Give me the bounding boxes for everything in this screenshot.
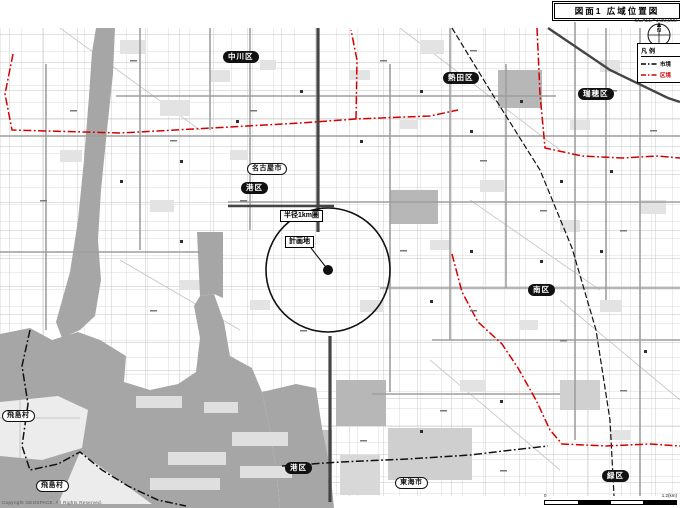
scale-bar-max-label: 1.2(km) xyxy=(662,494,677,499)
legend-item-ward-boundary: 区境 xyxy=(641,71,680,79)
legend: 凡例 市境 区境 xyxy=(637,43,680,83)
radius-ring-label: 半径1km圏 xyxy=(280,210,323,222)
copyright-text: Copyright GEOSPACE. All Rights Reserved. xyxy=(2,500,102,505)
scale-bar: 0 1.2(km) xyxy=(544,494,677,505)
ward-label-mizuho: 瑞穂区 xyxy=(578,88,614,100)
map-graphic xyxy=(0,0,680,508)
city-label-tokai: 東海市 xyxy=(395,477,428,489)
legend-item-city-boundary: 市境 xyxy=(641,60,680,68)
plan-site-dot xyxy=(323,265,333,275)
legend-item-label: 区境 xyxy=(660,71,671,79)
plan-site-label: 計画地 xyxy=(285,236,314,248)
village-label-tobishima-1: 飛島村 xyxy=(2,410,35,422)
scale-bar-segments xyxy=(544,500,677,505)
city-label-nagoya: 名古屋市 xyxy=(247,163,287,175)
canal xyxy=(197,232,223,298)
ward-label-midori: 緑区 xyxy=(602,470,629,482)
scale-bar-zero: 0 xyxy=(544,494,547,499)
ward-label-minato-2: 港区 xyxy=(285,462,312,474)
city-boundary-line-sample xyxy=(641,62,657,66)
page-title: 図面1 広域位置図 xyxy=(554,3,680,19)
village-label-tobishima-2: 飛島村 xyxy=(36,480,69,492)
ward-label-atsuta: 熱田区 xyxy=(443,72,479,84)
legend-title: 凡例 xyxy=(641,46,680,57)
ward-boundary-line-sample xyxy=(641,73,657,77)
ward-label-minato: 港区 xyxy=(241,182,268,194)
ward-label-minami: 南区 xyxy=(528,284,555,296)
ward-label-nakagawa: 中川区 xyxy=(223,51,259,63)
compass-north-label: N xyxy=(657,28,661,34)
page: 図面1 広域位置図 SCALE=1:30,000 N 凡例 市境 区境 中川区 … xyxy=(0,0,680,508)
legend-item-label: 市境 xyxy=(660,60,671,68)
